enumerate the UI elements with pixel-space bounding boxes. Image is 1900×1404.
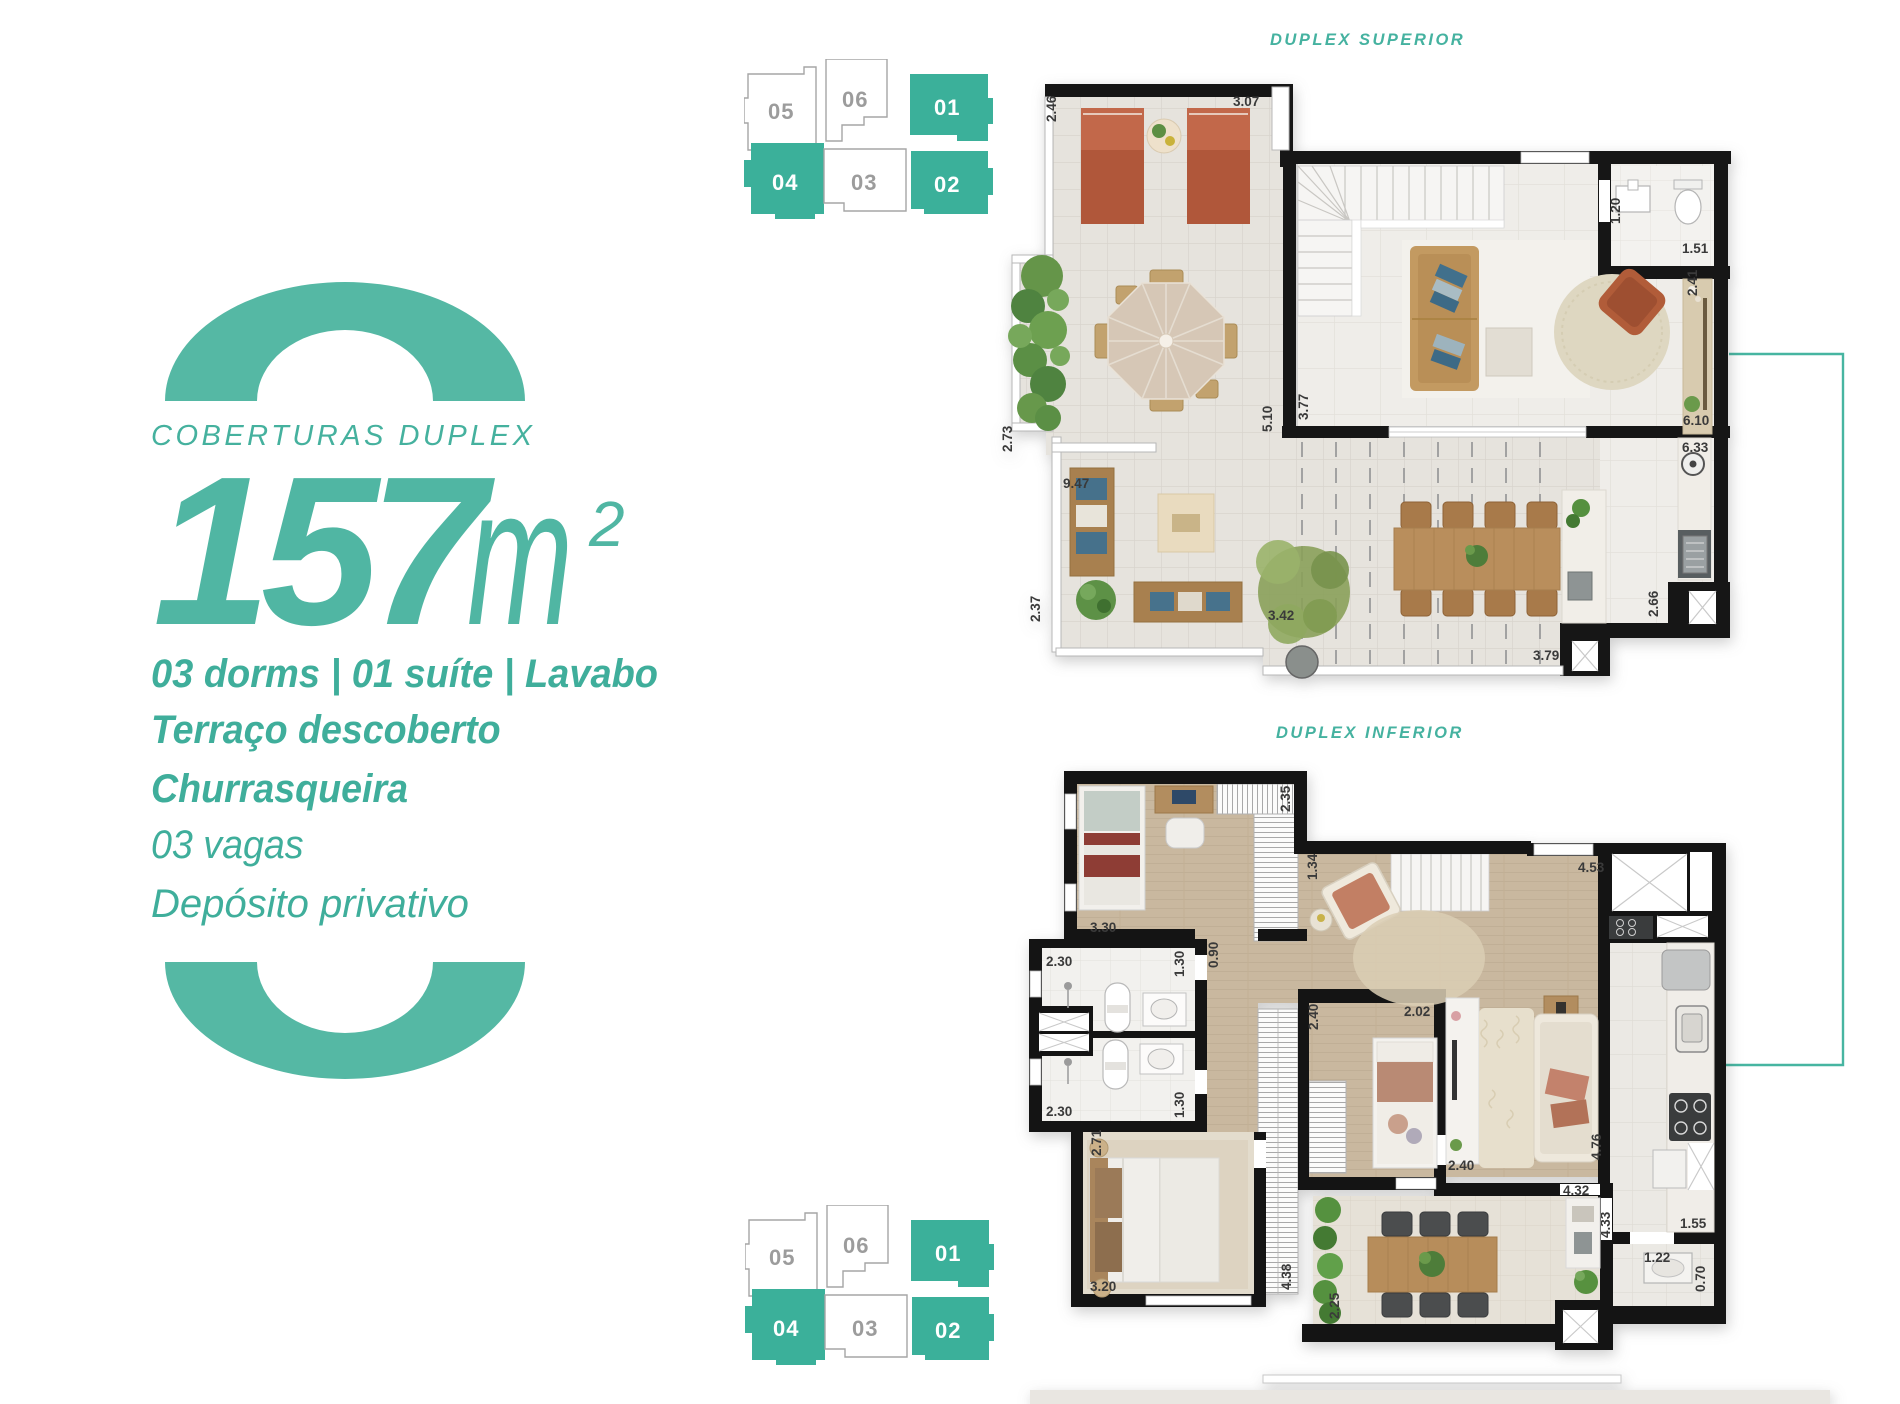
svg-text:1.30: 1.30	[1172, 1092, 1187, 1118]
svg-text:2.02: 2.02	[1404, 1004, 1430, 1019]
svg-text:03: 03	[852, 1316, 878, 1341]
svg-text:1.51: 1.51	[1682, 241, 1709, 256]
svg-text:157: 157	[153, 452, 496, 632]
svg-text:4.53: 4.53	[1578, 860, 1605, 875]
svg-text:2.37: 2.37	[1028, 596, 1043, 622]
svg-text:05: 05	[769, 1245, 795, 1270]
svg-text:2.41: 2.41	[1685, 269, 1700, 296]
svg-text:2: 2	[588, 488, 625, 560]
svg-text:0.70: 0.70	[1693, 1266, 1708, 1292]
svg-text:3.07: 3.07	[1233, 94, 1259, 109]
svg-text:1.55: 1.55	[1680, 1216, 1707, 1231]
svg-text:3.77: 3.77	[1296, 394, 1311, 420]
svg-text:02: 02	[934, 172, 960, 197]
svg-text:1.34: 1.34	[1305, 853, 1320, 880]
svg-text:2.73: 2.73	[1000, 425, 1015, 452]
svg-text:3.79: 3.79	[1533, 648, 1559, 663]
svg-text:3.20: 3.20	[1090, 1279, 1116, 1294]
svg-text:06: 06	[843, 1233, 869, 1258]
svg-text:2.30: 2.30	[1046, 954, 1072, 969]
svg-text:4.76: 4.76	[1589, 1133, 1604, 1160]
svg-text:6.33: 6.33	[1682, 440, 1709, 455]
svg-text:2.66: 2.66	[1646, 590, 1661, 617]
svg-text:3.42: 3.42	[1268, 608, 1294, 623]
svg-text:01: 01	[935, 1241, 961, 1266]
svg-text:06: 06	[842, 87, 868, 112]
svg-text:0.90: 0.90	[1206, 942, 1221, 968]
svg-text:01: 01	[934, 95, 960, 120]
svg-text:05: 05	[768, 99, 794, 124]
svg-text:4.33: 4.33	[1598, 1211, 1613, 1238]
svg-text:04: 04	[773, 1316, 799, 1341]
svg-text:1.20: 1.20	[1608, 198, 1623, 224]
svg-text:2.40: 2.40	[1306, 1004, 1321, 1030]
svg-text:2.46: 2.46	[1044, 95, 1059, 122]
svg-text:4.38: 4.38	[1279, 1263, 1294, 1290]
svg-text:4.32: 4.32	[1563, 1183, 1589, 1198]
svg-text:02: 02	[935, 1318, 961, 1343]
svg-text:2.35: 2.35	[1278, 785, 1293, 812]
svg-text:9.47: 9.47	[1063, 476, 1089, 491]
svg-text:3.30: 3.30	[1090, 920, 1116, 935]
svg-text:2.40: 2.40	[1448, 1158, 1474, 1173]
svg-text:2.71: 2.71	[1089, 1129, 1104, 1156]
svg-text:6.10: 6.10	[1683, 413, 1709, 428]
svg-text:03: 03	[851, 170, 877, 195]
svg-text:m: m	[467, 452, 573, 632]
svg-text:1.30: 1.30	[1172, 951, 1187, 977]
svg-text:04: 04	[772, 170, 798, 195]
svg-text:1.22: 1.22	[1644, 1250, 1670, 1265]
svg-text:2.25: 2.25	[1327, 1292, 1342, 1319]
svg-text:5.10: 5.10	[1260, 406, 1275, 432]
svg-text:2.30: 2.30	[1046, 1104, 1072, 1119]
